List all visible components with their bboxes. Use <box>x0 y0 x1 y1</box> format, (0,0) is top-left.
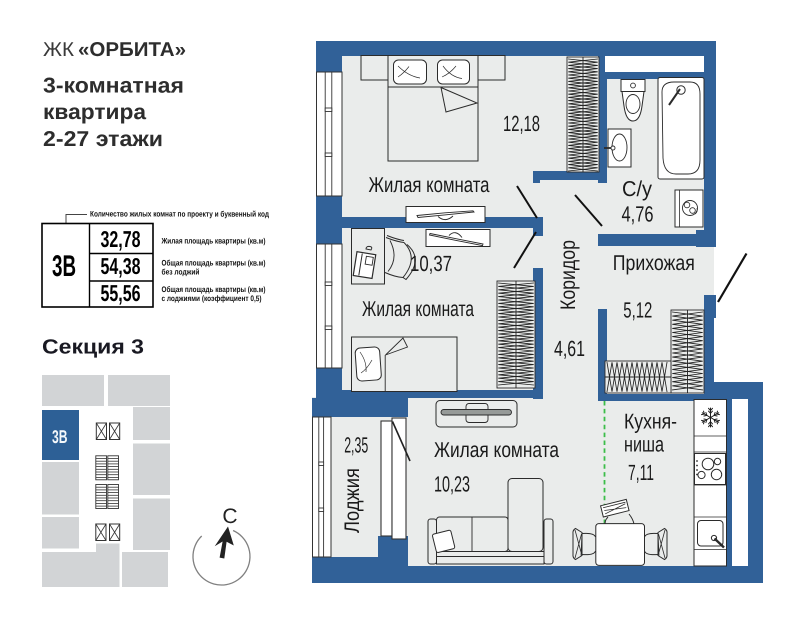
svg-text:55,56: 55,56 <box>100 280 140 306</box>
svg-text:3В: 3В <box>52 426 68 447</box>
svg-text:54,38: 54,38 <box>100 253 140 279</box>
svg-text:5,12: 5,12 <box>623 297 652 322</box>
svg-text:2,35: 2,35 <box>344 432 368 457</box>
svg-text:10,23: 10,23 <box>434 471 470 496</box>
svg-text:3В: 3В <box>52 250 76 283</box>
svg-text:«ОРБИТА»: «ОРБИТА» <box>78 39 186 61</box>
svg-text:3-комнатная: 3-комнатная <box>43 74 184 98</box>
svg-text:4,61: 4,61 <box>554 336 585 361</box>
svg-text:ЖК: ЖК <box>43 39 74 61</box>
svg-text:С: С <box>222 505 237 528</box>
svg-text:Жилая комната: Жилая комната <box>368 173 489 197</box>
svg-text:Коридор: Коридор <box>556 240 580 310</box>
svg-text:32,78: 32,78 <box>100 226 140 252</box>
svg-text:10,37: 10,37 <box>410 251 452 276</box>
svg-text:12,18: 12,18 <box>503 111 540 136</box>
svg-text:без лоджий: без лоджий <box>161 268 199 277</box>
svg-text:Жилая площадь квартиры (кв.м): Жилая площадь квартиры (кв.м) <box>161 236 266 245</box>
svg-text:Общая площадь квартиры (кв.м): Общая площадь квартиры (кв.м) <box>161 285 265 294</box>
svg-text:7,11: 7,11 <box>628 460 654 485</box>
svg-text:Жилая комната: Жилая комната <box>434 438 559 462</box>
svg-text:4,76: 4,76 <box>621 201 653 226</box>
svg-text:ниша: ниша <box>624 433 664 457</box>
svg-text:2-27 этажи: 2-27 этажи <box>43 127 163 151</box>
svg-text:Общая площадь квартиры (кв.м): Общая площадь квартиры (кв.м) <box>161 259 265 268</box>
svg-text:Количество жилых комнат по про: Количество жилых комнат по проекту и бук… <box>90 210 269 219</box>
svg-text:Лоджия: Лоджия <box>340 468 364 533</box>
svg-text:Прихожая: Прихожая <box>613 251 695 275</box>
svg-text:Кухня-: Кухня- <box>624 410 677 434</box>
svg-text:Жилая комната: Жилая комната <box>362 297 474 321</box>
svg-text:с лоджиями (коэффициент 0,5): с лоджиями (коэффициент 0,5) <box>161 294 261 303</box>
svg-text:Секция 3: Секция 3 <box>42 336 144 359</box>
svg-text:С/у: С/у <box>622 177 652 201</box>
svg-text:квартира: квартира <box>43 100 147 124</box>
